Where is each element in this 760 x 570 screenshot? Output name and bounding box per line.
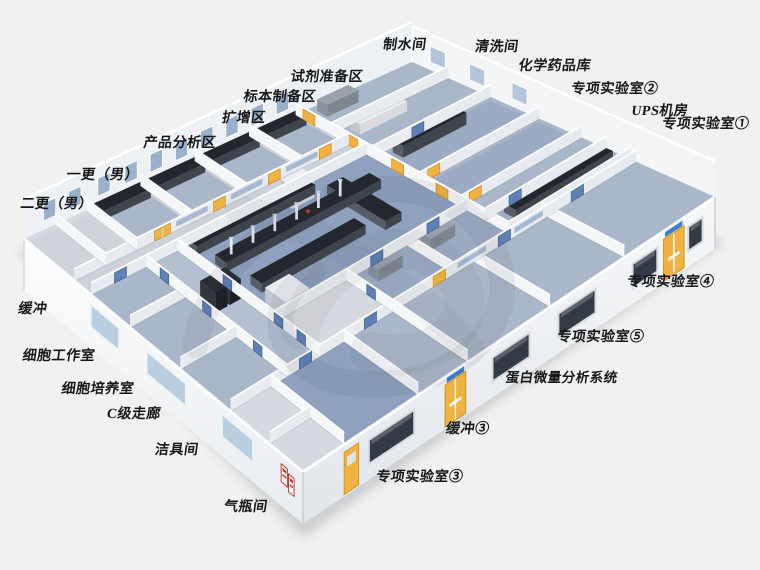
label-cell-workroom: 细胞工作室 <box>21 345 96 365</box>
lab-floorplan-page: 制水间 清洗间 化学药品库 专项实验室② UPS机房 专项实验室① 试剂准备区 … <box>0 0 760 570</box>
label-amplification-area: 扩增区 <box>221 107 267 127</box>
label-cleaning-tools-room: 洁具间 <box>154 439 200 459</box>
label-first-change-male: 一更（男） <box>65 164 140 184</box>
label-specimen-prep-area: 标本制备区 <box>242 86 317 106</box>
label-washing-room: 清洗间 <box>474 36 520 56</box>
label-buffer: 缓冲 <box>17 298 49 318</box>
label-second-change-male: 二更（男） <box>19 193 94 213</box>
label-gas-cylinder-room: 气瓶间 <box>223 496 269 516</box>
label-buffer-3: 缓冲③ <box>445 418 491 438</box>
label-class-c-corridor: C级走廊 <box>106 403 163 423</box>
label-product-analysis-area: 产品分析区 <box>142 132 217 152</box>
label-special-lab-4: 专项实验室④ <box>626 271 716 291</box>
label-water-production-room: 制水间 <box>382 34 428 54</box>
label-special-lab-2: 专项实验室② <box>570 78 660 98</box>
label-special-lab-3: 专项实验室③ <box>375 466 465 486</box>
label-cell-culture-room: 细胞培养室 <box>60 378 135 398</box>
label-special-lab-5: 专项实验室⑤ <box>556 326 646 346</box>
label-special-lab-1: 专项实验室① <box>661 113 751 133</box>
label-protein-microanalysis-system: 蛋白微量分析系统 <box>505 366 620 386</box>
label-chemical-storage: 化学药品库 <box>517 55 592 75</box>
label-reagent-prep-area: 试剂准备区 <box>289 66 364 86</box>
